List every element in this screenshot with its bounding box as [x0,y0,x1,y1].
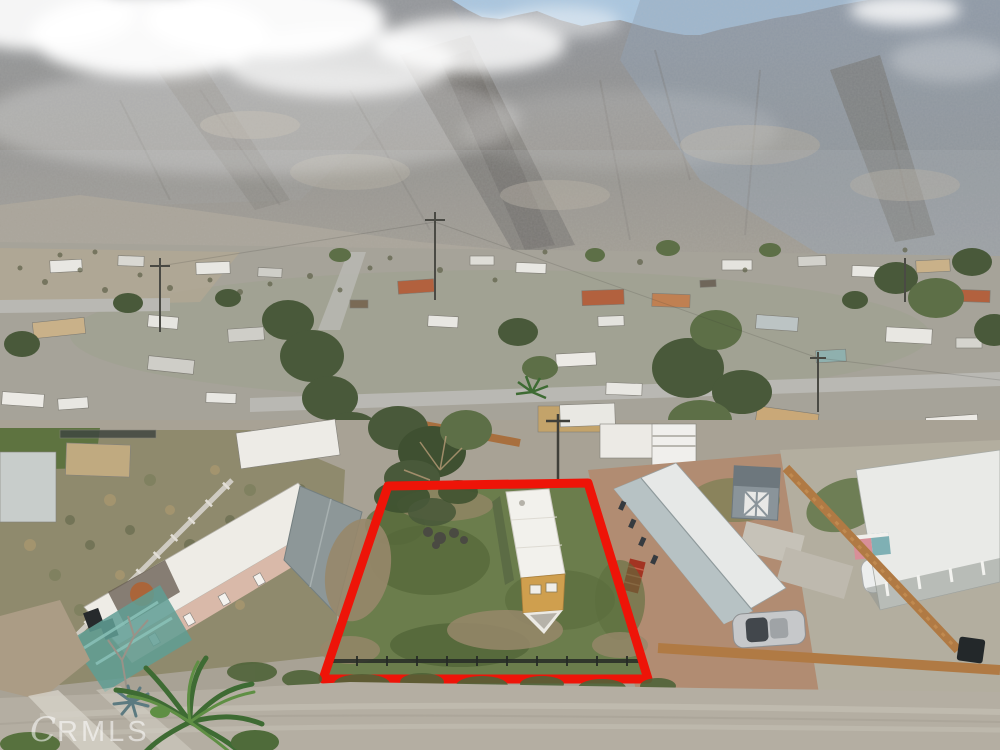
watermark-initial: C [30,710,59,750]
silver-sedan [732,610,806,649]
home-window [530,585,541,594]
gray-house-left-edge [0,452,56,522]
aerial-photo: CRMLS [0,0,1000,750]
dirt-road [0,682,1000,750]
tan-shed [65,443,130,477]
grass-tuft [150,706,170,718]
foreground [0,403,1000,710]
barn-shed [732,466,781,520]
home-window [546,583,557,592]
white-trailer [600,424,658,458]
crmls-watermark: CRMLS [30,710,150,750]
home-wall-tan [521,574,565,613]
watermark-rest: RMLS [57,716,150,748]
scene-canvas [0,0,1000,750]
trash-bin [956,636,985,663]
roof-vent [519,500,525,506]
